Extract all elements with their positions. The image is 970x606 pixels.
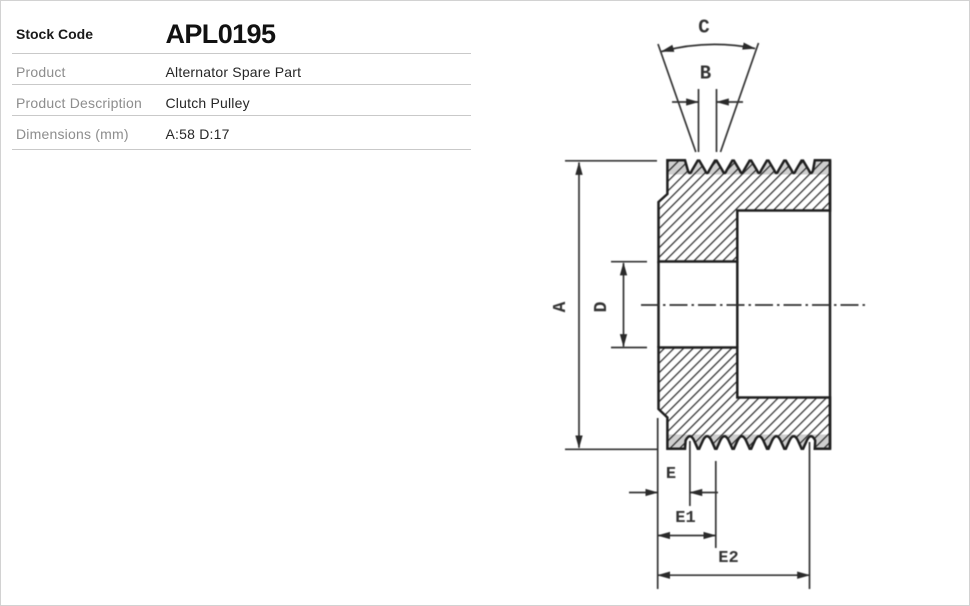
svg-text:A: A bbox=[551, 301, 571, 312]
svg-text:E: E bbox=[666, 465, 676, 484]
svg-text:E2: E2 bbox=[718, 549, 738, 568]
svg-text:D: D bbox=[592, 301, 612, 312]
svg-text:B: B bbox=[700, 63, 711, 85]
svg-text:C: C bbox=[698, 17, 709, 39]
svg-text:E1: E1 bbox=[675, 509, 695, 528]
